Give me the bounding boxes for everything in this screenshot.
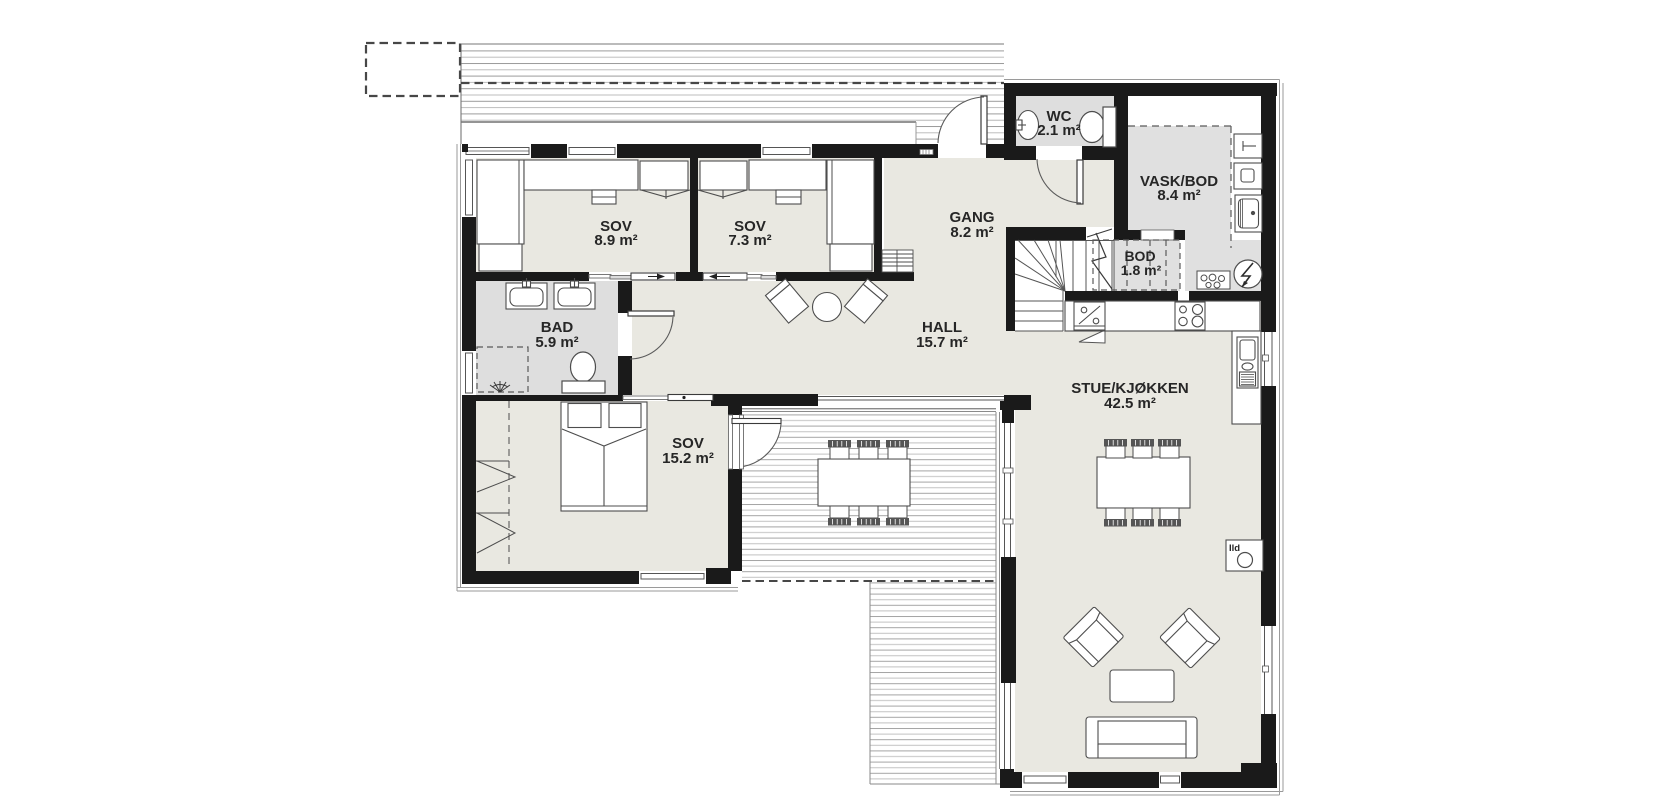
svg-text:42.5 m²: 42.5 m² <box>1104 395 1156 412</box>
svg-text:15.7 m²: 15.7 m² <box>916 334 968 351</box>
svg-text:8.2 m²: 8.2 m² <box>950 224 993 241</box>
svg-text:Ild: Ild <box>1229 543 1240 554</box>
svg-text:8.4 m²: 8.4 m² <box>1157 187 1200 204</box>
svg-text:5.9 m²: 5.9 m² <box>535 334 578 351</box>
svg-text:7.3 m²: 7.3 m² <box>728 232 771 249</box>
svg-text:15.2 m²: 15.2 m² <box>662 450 714 467</box>
svg-text:2.1 m²: 2.1 m² <box>1037 122 1080 139</box>
svg-text:1.8 m²: 1.8 m² <box>1121 262 1162 278</box>
svg-text:8.9 m²: 8.9 m² <box>594 232 637 249</box>
